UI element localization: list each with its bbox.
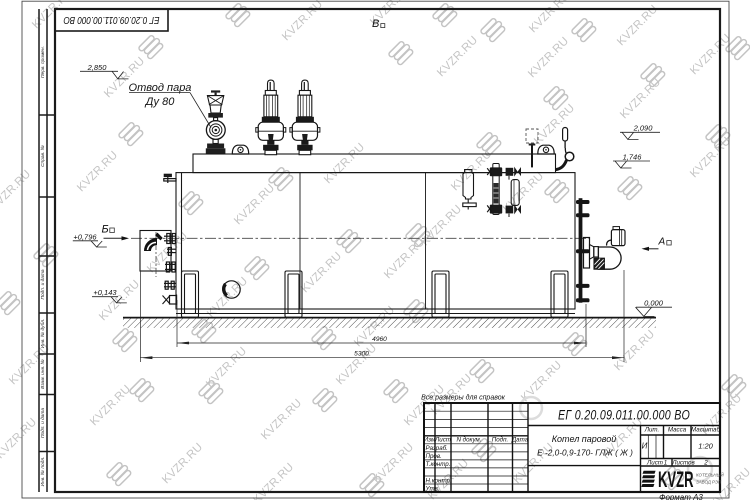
svg-text:Справ. №: Справ. № bbox=[40, 145, 46, 167]
svg-text:Пров.: Пров. bbox=[426, 453, 442, 460]
svg-text:+0,796: +0,796 bbox=[73, 233, 97, 242]
svg-text:Дата: Дата bbox=[511, 436, 529, 443]
svg-text:А: А bbox=[658, 237, 666, 248]
svg-text:2,850: 2,850 bbox=[87, 63, 108, 72]
svg-text:Лист: Лист bbox=[434, 436, 451, 443]
svg-text:Подп. и дата: Подп. и дата bbox=[40, 269, 46, 299]
svg-text:4960: 4960 bbox=[372, 336, 387, 343]
svg-text:2: 2 bbox=[703, 459, 708, 466]
svg-text:Утв.: Утв. bbox=[425, 485, 440, 492]
svg-text:В: В bbox=[372, 18, 379, 30]
svg-text:KVZR: KVZR bbox=[658, 466, 693, 492]
svg-text:И: И bbox=[642, 442, 648, 451]
svg-text:ЕГ 0.20.09.011.00.000 ВО: ЕГ 0.20.09.011.00.000 ВО bbox=[63, 15, 160, 27]
svg-text:ЕГ 0.20.09.011.00.000 ВО: ЕГ 0.20.09.011.00.000 ВО bbox=[558, 407, 690, 423]
svg-text:Разраб.: Разраб. bbox=[426, 445, 448, 452]
svg-text:Взам. инв. №: Взам. инв. № bbox=[40, 359, 46, 389]
svg-text:1:20: 1:20 bbox=[698, 442, 713, 451]
svg-text:Подп. и дата: Подп. и дата bbox=[40, 408, 46, 438]
svg-text:Н.контр.: Н.контр. bbox=[426, 477, 452, 484]
svg-text:N докум.: N докум. bbox=[456, 436, 481, 443]
svg-text:Ду 80: Ду 80 bbox=[144, 96, 176, 108]
svg-text:Котел паровой: Котел паровой bbox=[552, 434, 617, 444]
svg-text:ЗАВОД РЭП: ЗАВОД РЭП bbox=[696, 480, 722, 485]
svg-text:+0,143: +0,143 bbox=[93, 288, 117, 297]
svg-text:Подп.: Подп. bbox=[492, 436, 508, 443]
svg-text:Инв. № дубл.: Инв. № дубл. bbox=[40, 319, 46, 349]
svg-text:Масса: Масса bbox=[668, 427, 687, 434]
svg-text:Масштаб: Масштаб bbox=[691, 427, 720, 434]
svg-text:Т.контр.: Т.контр. bbox=[426, 461, 451, 468]
svg-text:0,000: 0,000 bbox=[644, 298, 664, 307]
svg-text:КОТЕЛЬНЫЙ: КОТЕЛЬНЫЙ bbox=[696, 473, 724, 478]
svg-text:2,090: 2,090 bbox=[633, 123, 654, 132]
svg-text:Б: Б bbox=[102, 224, 109, 236]
svg-text:Лит.: Лит. bbox=[644, 427, 660, 434]
svg-text:Формат А3: Формат А3 bbox=[659, 493, 703, 500]
svg-text:Инв. № подл.: Инв. № подл. bbox=[40, 457, 46, 487]
svg-text:Отвод пара: Отвод пара bbox=[129, 82, 192, 94]
svg-text:Е -2,0-0,9-170- ГЛЖ ( Ж ): Е -2,0-0,9-170- ГЛЖ ( Ж ) bbox=[537, 448, 633, 458]
svg-text:Перв. примен.: Перв. примен. bbox=[40, 46, 46, 78]
svg-text:Все размеры для справок: Все размеры для справок bbox=[421, 394, 506, 402]
svg-text:1,746: 1,746 bbox=[623, 152, 643, 161]
svg-text:5300: 5300 bbox=[354, 351, 369, 358]
